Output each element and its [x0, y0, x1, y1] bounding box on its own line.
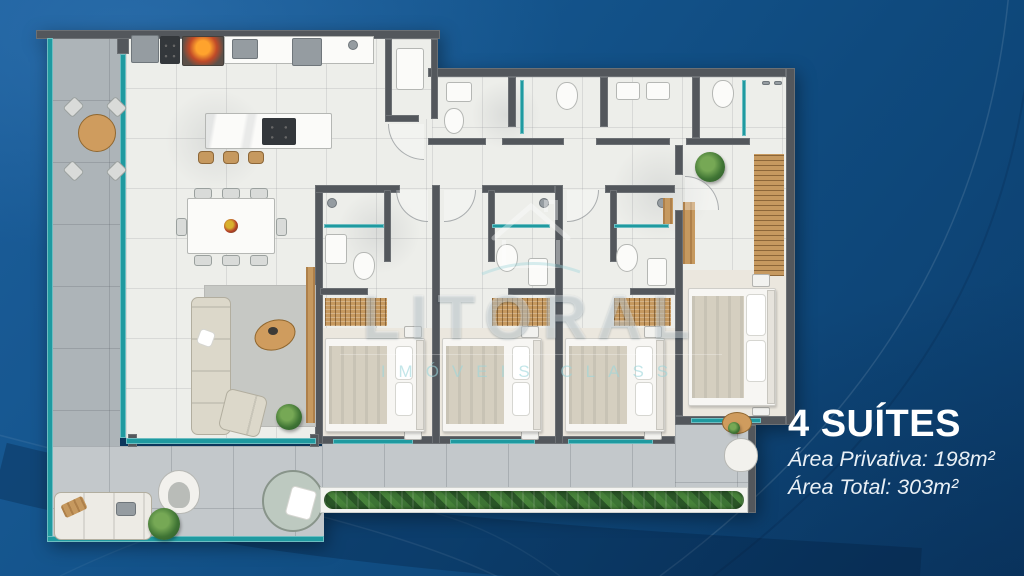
suite1-toilet — [353, 252, 375, 280]
suite3-window — [568, 439, 653, 444]
toilet — [712, 80, 734, 108]
suite2-shower-glass — [492, 224, 550, 228]
suite3-sink — [647, 258, 667, 286]
headboard — [656, 340, 664, 430]
pillow — [746, 340, 766, 382]
suite3-wall-left — [555, 185, 563, 444]
suite3-bath-wall-bottom — [630, 288, 675, 295]
shower-glass — [520, 80, 524, 134]
dining-chair — [276, 218, 287, 236]
towel-hook — [774, 81, 782, 85]
side-balcony-floor — [47, 38, 120, 446]
fridge — [292, 38, 322, 66]
suite3-shower-glass — [614, 224, 669, 228]
kitchen-sink — [232, 39, 258, 59]
suite1-shower-glass — [324, 224, 384, 228]
bar-stool — [248, 151, 264, 164]
suite3-toilet — [616, 244, 638, 272]
shower-head — [327, 198, 337, 208]
plant — [276, 404, 302, 430]
suite1-bath-wall — [384, 190, 391, 262]
pillow — [635, 346, 653, 380]
master-wall-left-upper — [675, 145, 683, 175]
headboard — [533, 340, 541, 430]
pillow — [512, 346, 530, 380]
suite2-wardrobe — [492, 298, 550, 326]
bath-row-bottom-wall — [596, 138, 670, 145]
bathroom-sink — [616, 82, 640, 100]
cooktop — [160, 36, 180, 64]
dining-chair — [250, 255, 268, 266]
hedge — [324, 491, 744, 509]
floor-plan — [36, 30, 796, 546]
page-background: LITORAL IMÓVEIS CLASS 4 SUÍTES Área Priv… — [0, 0, 1024, 576]
pillow — [512, 382, 530, 416]
dining-chair — [222, 255, 240, 266]
master-wardrobe — [754, 154, 784, 276]
pantry-wall-right — [431, 39, 438, 119]
dining-chair — [176, 218, 187, 236]
table-decor — [268, 327, 278, 335]
living-window — [126, 438, 316, 444]
grill-oven — [182, 36, 224, 66]
nightstand — [404, 326, 422, 338]
nightstand — [644, 326, 662, 338]
outdoor-chair — [724, 438, 758, 472]
fruit-bowl — [224, 219, 238, 233]
info-panel: 4 SUÍTES Área Privativa: 198m² Área Tota… — [788, 404, 995, 502]
dining-chair — [194, 255, 212, 266]
pillow — [746, 294, 766, 336]
pillow — [635, 382, 653, 416]
hall-console — [663, 198, 673, 224]
wall-top-right — [428, 68, 786, 77]
tv-panel — [306, 267, 315, 423]
wall-right — [786, 68, 795, 425]
bathroom-sink — [446, 82, 472, 102]
bar-stool — [198, 151, 214, 164]
bath-divider-1 — [508, 77, 516, 127]
shower-head — [539, 198, 549, 208]
towel-hook — [762, 81, 770, 85]
nightstand — [521, 326, 539, 338]
bath-divider-2 — [600, 77, 608, 127]
hedge-planter — [320, 487, 748, 513]
pillow — [395, 346, 413, 380]
small-plant — [728, 422, 740, 434]
master-blanket — [692, 296, 744, 398]
chair-seat — [168, 482, 190, 508]
balcony-glass-rail-left — [47, 38, 53, 542]
suite2-bath-wall-bottom — [508, 288, 555, 295]
suite1-wall-left — [315, 185, 323, 444]
balcony-round-table — [78, 114, 116, 152]
outdoor-pillow — [116, 502, 136, 516]
pillow — [395, 382, 413, 416]
plant — [695, 152, 725, 182]
suite2-sink — [528, 258, 548, 286]
headboard — [767, 290, 775, 404]
bath-divider-3 — [692, 77, 700, 138]
nightstand — [752, 407, 770, 416]
bar-stool — [223, 151, 239, 164]
water-heater — [396, 48, 424, 90]
nightstand — [752, 274, 770, 287]
pantry-wall-left — [385, 39, 392, 119]
suite1-window — [333, 439, 413, 444]
total-area-label: Área Total: 303m² — [788, 474, 995, 502]
master-wall-left-lower — [675, 210, 683, 416]
island-cooktop — [262, 118, 296, 145]
glass-post — [117, 38, 129, 54]
shower-glass — [742, 80, 746, 136]
plant — [148, 508, 180, 540]
suite2-wall-left — [432, 185, 440, 444]
headboard — [416, 340, 424, 430]
kitchen-cabinet — [131, 35, 159, 63]
bath-row-bottom-wall — [428, 138, 486, 145]
toilet — [444, 108, 464, 134]
suite2-toilet — [496, 244, 518, 272]
suite1-wardrobe — [325, 298, 387, 326]
private-area-label: Área Privativa: 198m² — [788, 446, 995, 474]
pantry-wall-bottom — [385, 115, 419, 122]
faucet — [348, 40, 358, 50]
bath-row-bottom-wall — [686, 138, 750, 145]
bathroom-sink — [646, 82, 670, 100]
suite1-sink — [325, 234, 347, 264]
bath-row-bottom-wall — [502, 138, 564, 145]
suite3-wardrobe — [614, 298, 671, 326]
suite2-blanket — [446, 346, 504, 424]
toilet — [556, 82, 578, 110]
master-desk — [683, 202, 695, 264]
suite1-bath-wall-bottom — [320, 288, 368, 295]
suite3-blanket — [569, 346, 627, 424]
plan-title: 4 SUÍTES — [788, 404, 995, 446]
suite1-blanket — [329, 346, 387, 424]
